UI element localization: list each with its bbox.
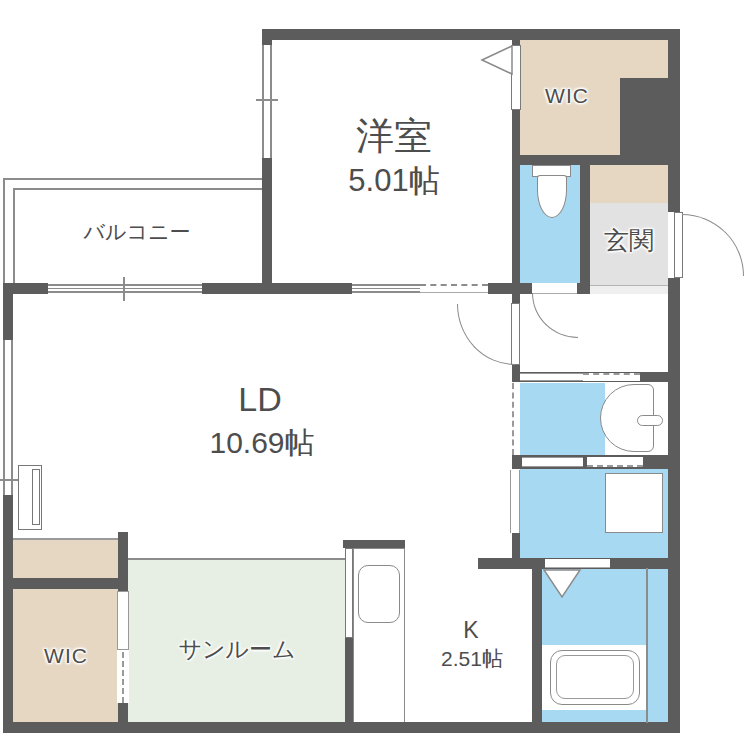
entrance-step (590, 285, 668, 294)
entrance-shoe-closet (590, 165, 668, 203)
label-living-dining-area: 10.69帖 (209, 423, 314, 464)
window-left-ld (3, 340, 13, 495)
wall-counter-top (343, 540, 405, 548)
opening-wic-lower-dashed (122, 652, 124, 703)
window-western-tick (256, 99, 278, 101)
closet-strip (13, 538, 118, 578)
wall-toilet-left (512, 165, 520, 294)
wall-top (262, 29, 680, 40)
wall-right (668, 29, 680, 733)
door-laundry-side-opening (510, 470, 520, 533)
wall-toilet-entrance (580, 155, 590, 294)
wall-laundry-left-lower (512, 533, 520, 558)
room-washbasin-floor (520, 383, 605, 455)
wall-left-lower (3, 495, 13, 722)
door-wic-lower (117, 591, 129, 650)
window-ld-western (352, 284, 420, 293)
label-wic-upper: WIC (545, 84, 589, 108)
wall-closet-strip-right (118, 532, 128, 578)
label-western-room-area: 5.01帖 (348, 160, 439, 202)
door-washbasin-sliding (520, 373, 583, 381)
wall-closet-wic (3, 578, 128, 589)
wall-wic-upper-notch (620, 78, 668, 155)
label-sunroom: サンルーム (178, 634, 295, 665)
door-bath-opening (545, 559, 610, 568)
label-wic-lower: WIC (44, 644, 88, 668)
opening-laundry-dashed (587, 457, 643, 467)
wall-ld-top-b (202, 283, 352, 294)
label-entrance: 玄関 (604, 224, 654, 257)
storage-cabinet-inner (32, 469, 40, 525)
window-sunroom-kitchen (345, 548, 353, 638)
opening-washbasin-dashed (583, 373, 640, 381)
washer-pan-icon (605, 473, 663, 533)
label-western-room: 洋室 (356, 111, 432, 162)
wic-door-swing-icon (480, 44, 514, 76)
wall-below-wic (512, 155, 668, 165)
sunroom-boundary-line (128, 558, 345, 560)
wall-bath-left (532, 568, 542, 723)
window-balcony-sliding (48, 284, 202, 293)
label-balcony: バルコニー (84, 218, 191, 246)
window-left-tick (0, 479, 18, 481)
window-balcony-tick (123, 277, 125, 301)
door-laundry-sliding (522, 457, 583, 467)
door-ld-swing (457, 304, 515, 365)
floor-plan: 洋室 5.01帖 バルコニー WIC 玄関 LD 10.69帖 WIC サンルー… (0, 0, 750, 750)
door-ld-western-sliding (420, 284, 488, 293)
bath-door-swing-icon (543, 568, 582, 599)
label-living-dining: LD (238, 380, 281, 419)
wall-ld-top-a (3, 283, 48, 294)
door-toilet-swing (532, 293, 578, 338)
label-kitchen-area: 2.51帖 (441, 645, 503, 673)
bathtub-inner-icon (556, 655, 634, 699)
window-western-left (262, 45, 272, 158)
faucet-icon (637, 415, 663, 426)
wall-sunroom-kitchen (345, 638, 353, 722)
kitchen-sink-icon (358, 565, 400, 623)
bath-divider-line (646, 568, 648, 723)
wall-bottom (3, 722, 680, 733)
washbasin-open-boundary (512, 383, 514, 455)
label-kitchen: K (463, 617, 478, 644)
entrance-door-swing (682, 214, 744, 276)
